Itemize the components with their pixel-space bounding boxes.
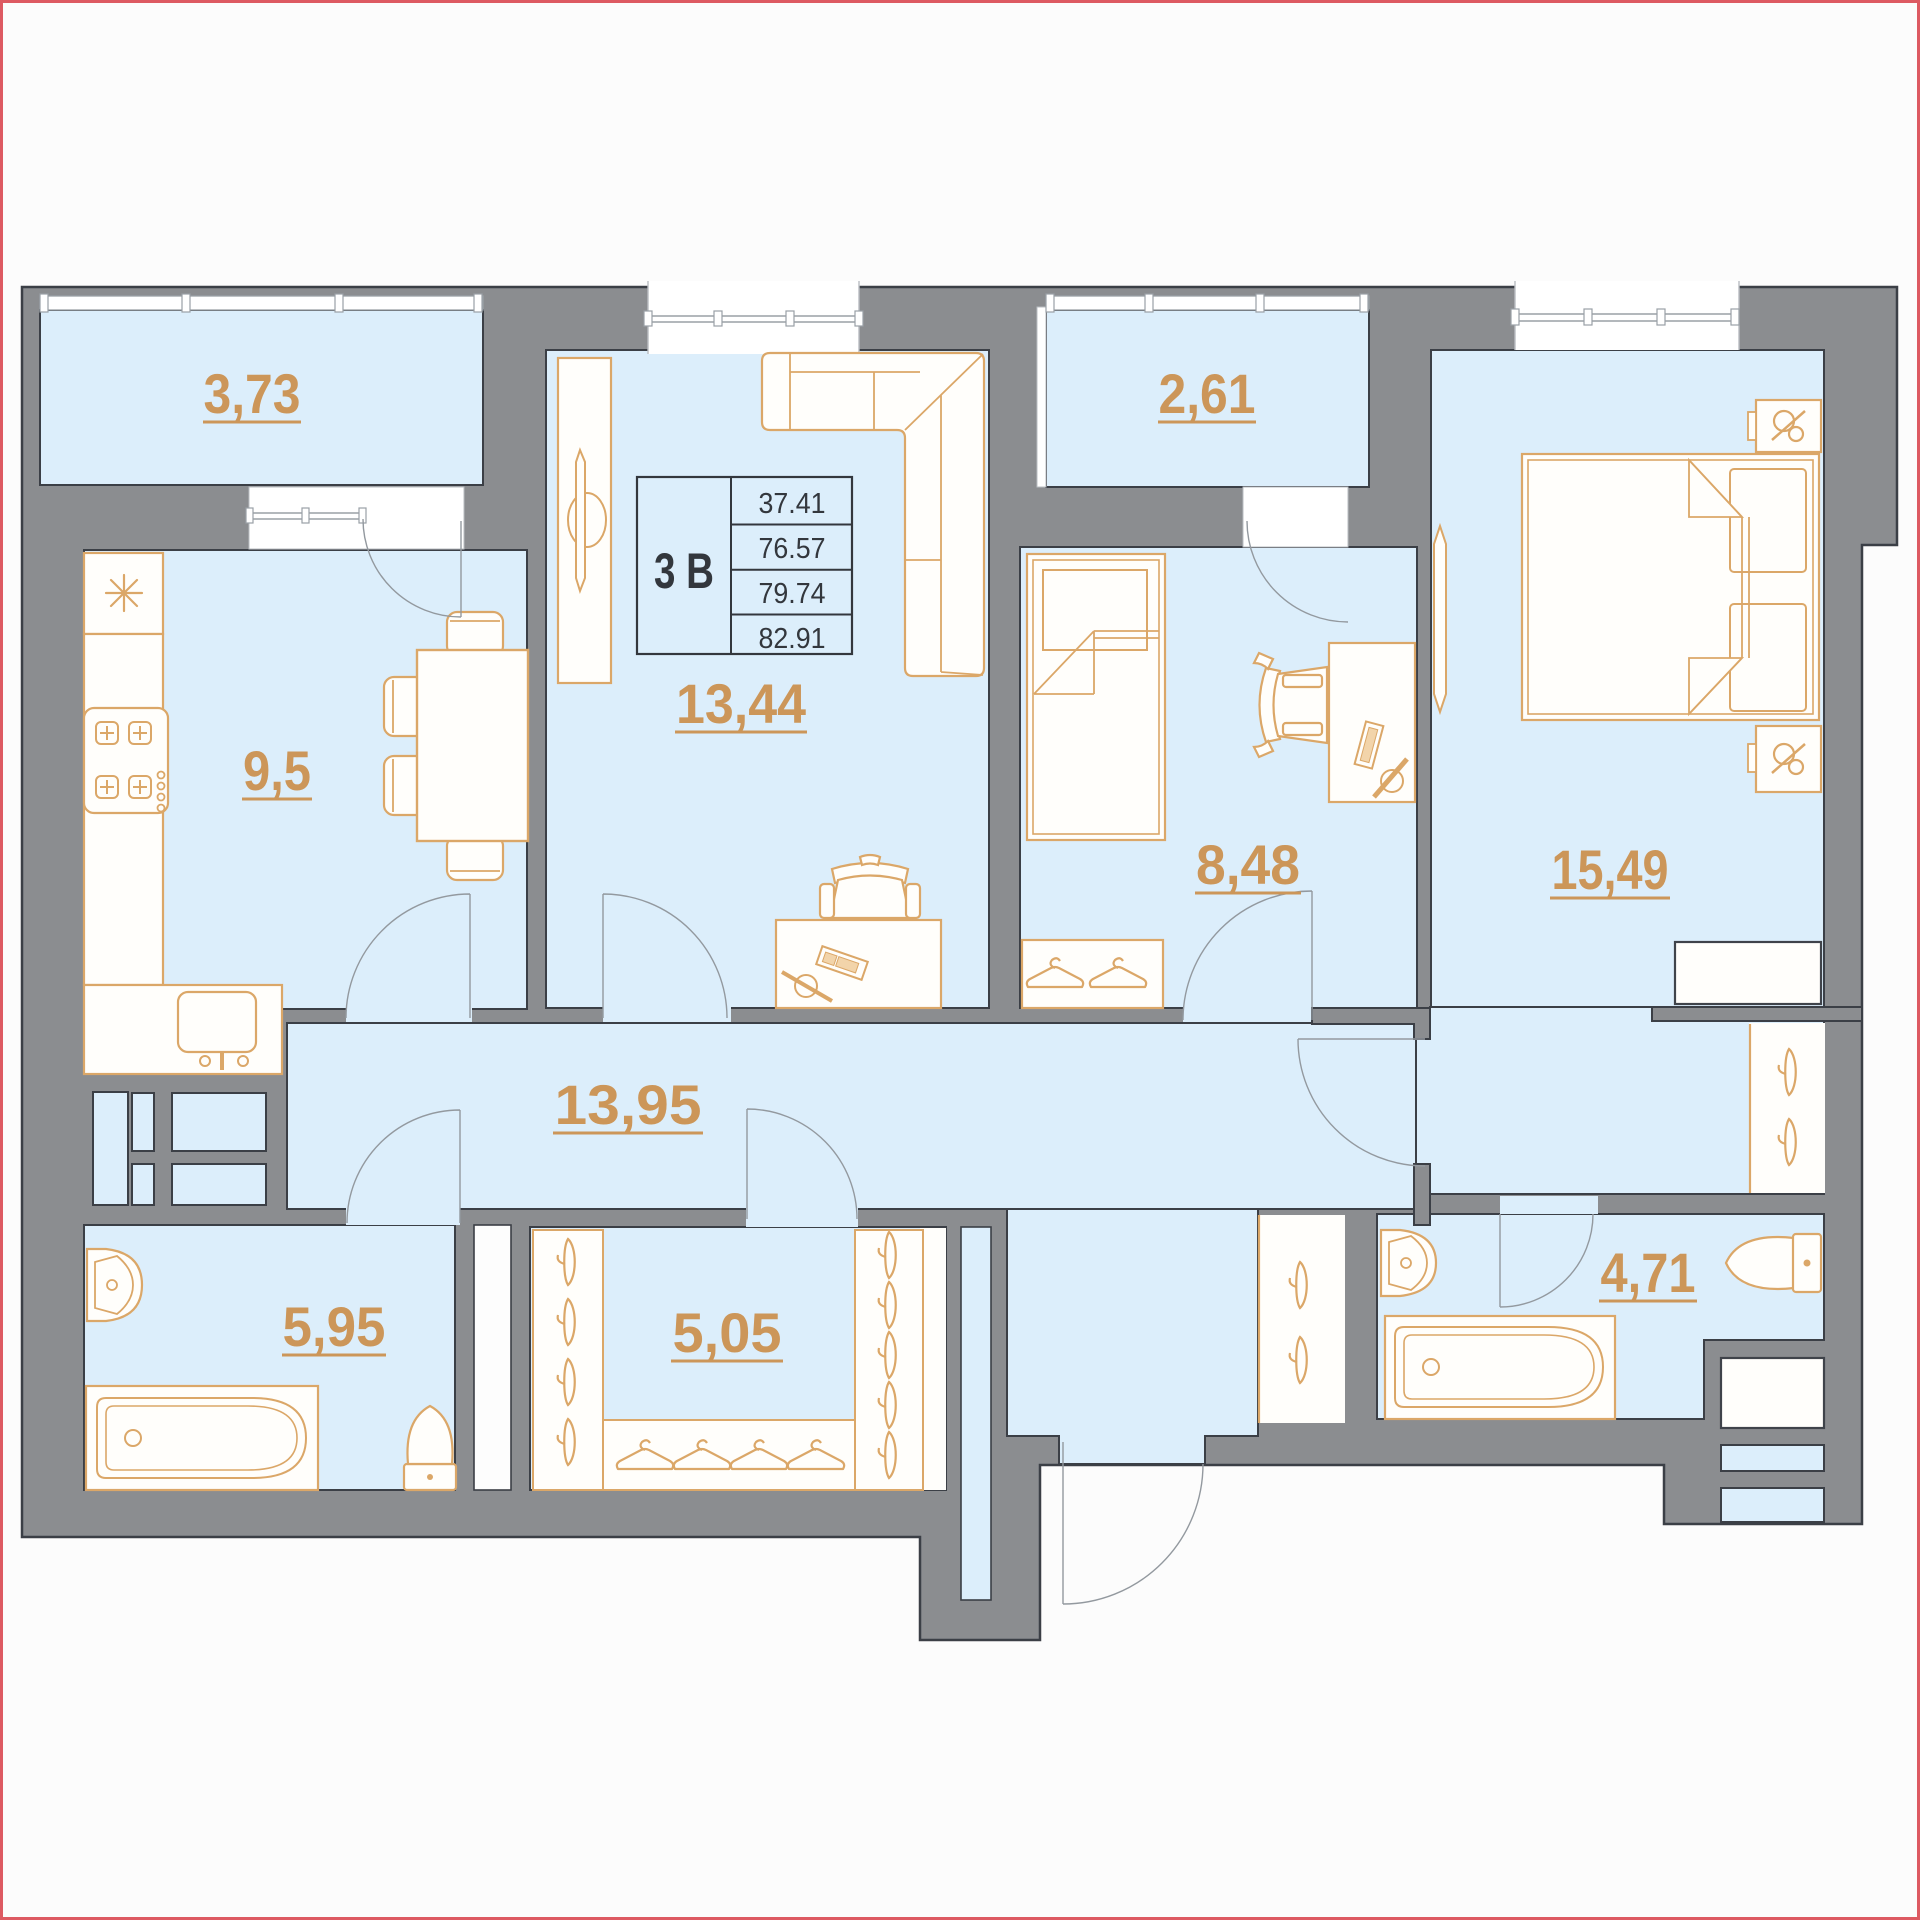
svg-text:4,71: 4,71: [1601, 1241, 1696, 1304]
svg-text:13,95: 13,95: [555, 1073, 702, 1136]
svg-text:3,73: 3,73: [204, 362, 301, 425]
svg-text:8,48: 8,48: [1196, 833, 1300, 896]
svg-text:13,44: 13,44: [676, 672, 806, 735]
svg-text:3 В: 3 В: [654, 543, 714, 599]
svg-text:79.74: 79.74: [759, 578, 826, 610]
svg-text:9,5: 9,5: [243, 739, 311, 802]
svg-text:15,49: 15,49: [1552, 838, 1669, 901]
svg-text:2,61: 2,61: [1159, 362, 1256, 425]
svg-text:82.91: 82.91: [759, 623, 826, 655]
svg-text:5,95: 5,95: [283, 1295, 386, 1358]
svg-text:37.41: 37.41: [759, 488, 826, 520]
svg-text:76.57: 76.57: [759, 533, 826, 565]
svg-text:5,05: 5,05: [673, 1301, 782, 1364]
